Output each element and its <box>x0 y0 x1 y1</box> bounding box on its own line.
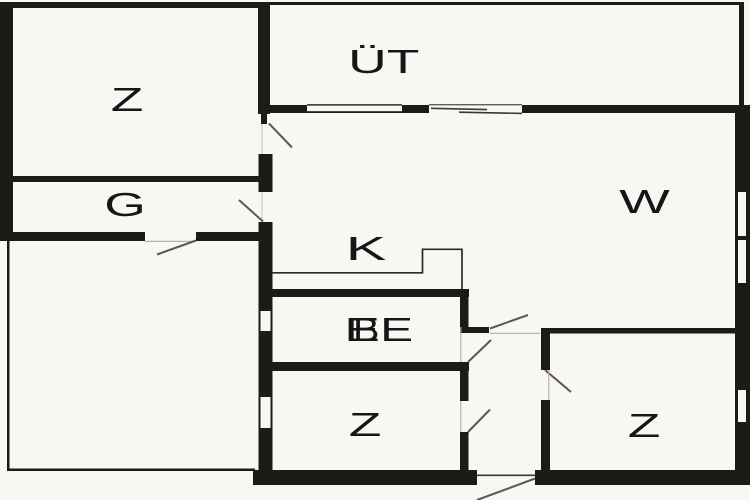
svg-text:ÜT: ÜT <box>348 44 419 80</box>
svg-text:Z: Z <box>111 82 144 118</box>
svg-text:E: E <box>380 311 413 348</box>
svg-text:W: W <box>619 184 670 220</box>
svg-text:K: K <box>346 231 387 267</box>
svg-text:Z: Z <box>628 408 661 444</box>
svg-text:Z: Z <box>349 407 382 443</box>
svg-text:G: G <box>104 187 146 223</box>
svg-text:B: B <box>353 311 379 348</box>
